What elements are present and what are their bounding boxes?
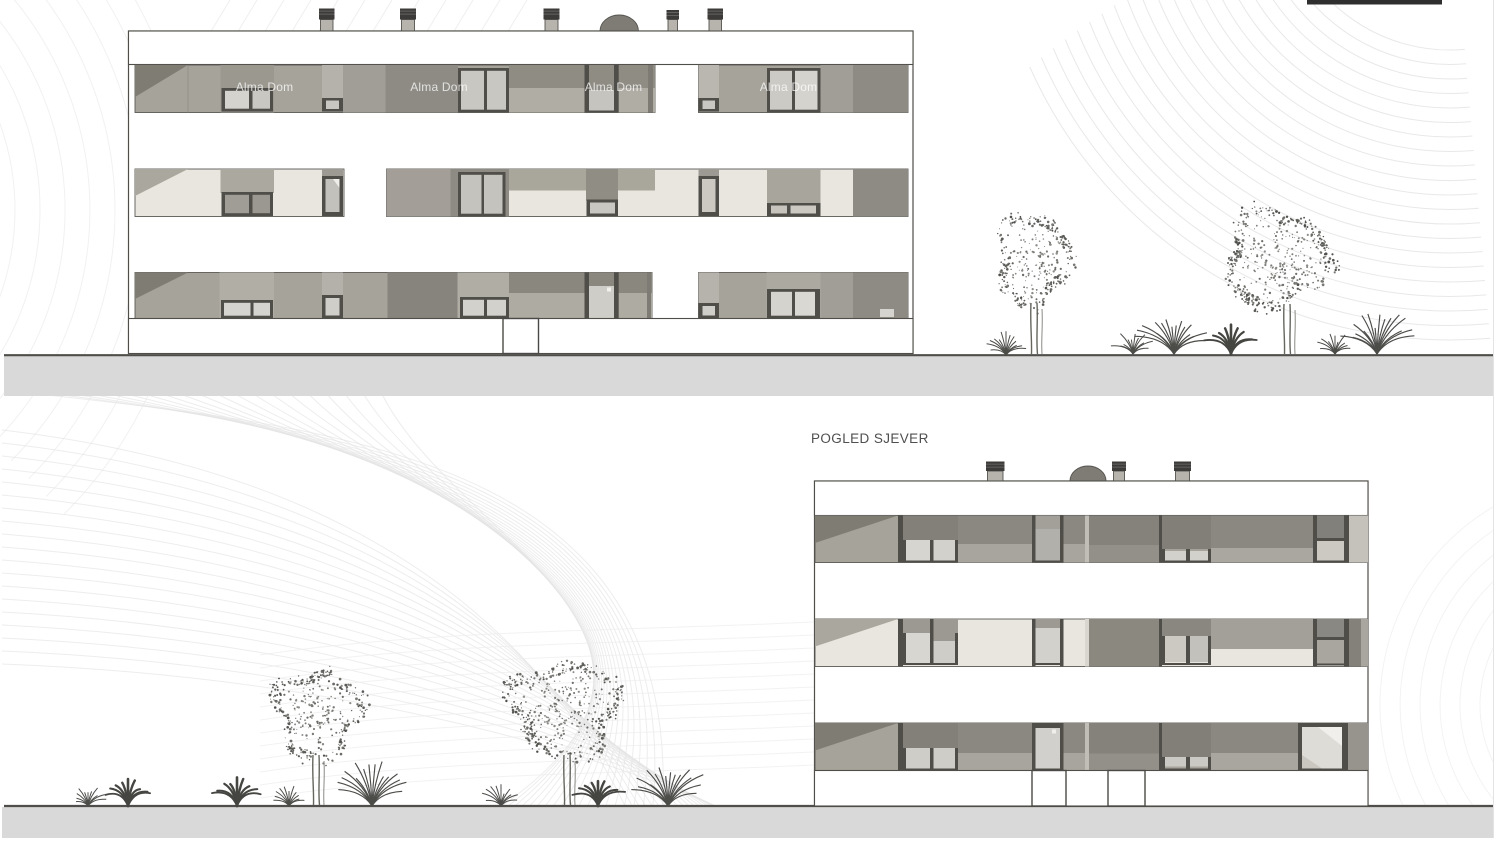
svg-text:Alma Dom: Alma Dom [585,80,643,94]
svg-text:Alma Dom: Alma Dom [760,80,818,94]
svg-text:POGLED SJEVER: POGLED SJEVER [811,431,929,446]
svg-text:Alma Dom: Alma Dom [410,80,468,94]
svg-text:Alma Dom: Alma Dom [236,80,294,94]
